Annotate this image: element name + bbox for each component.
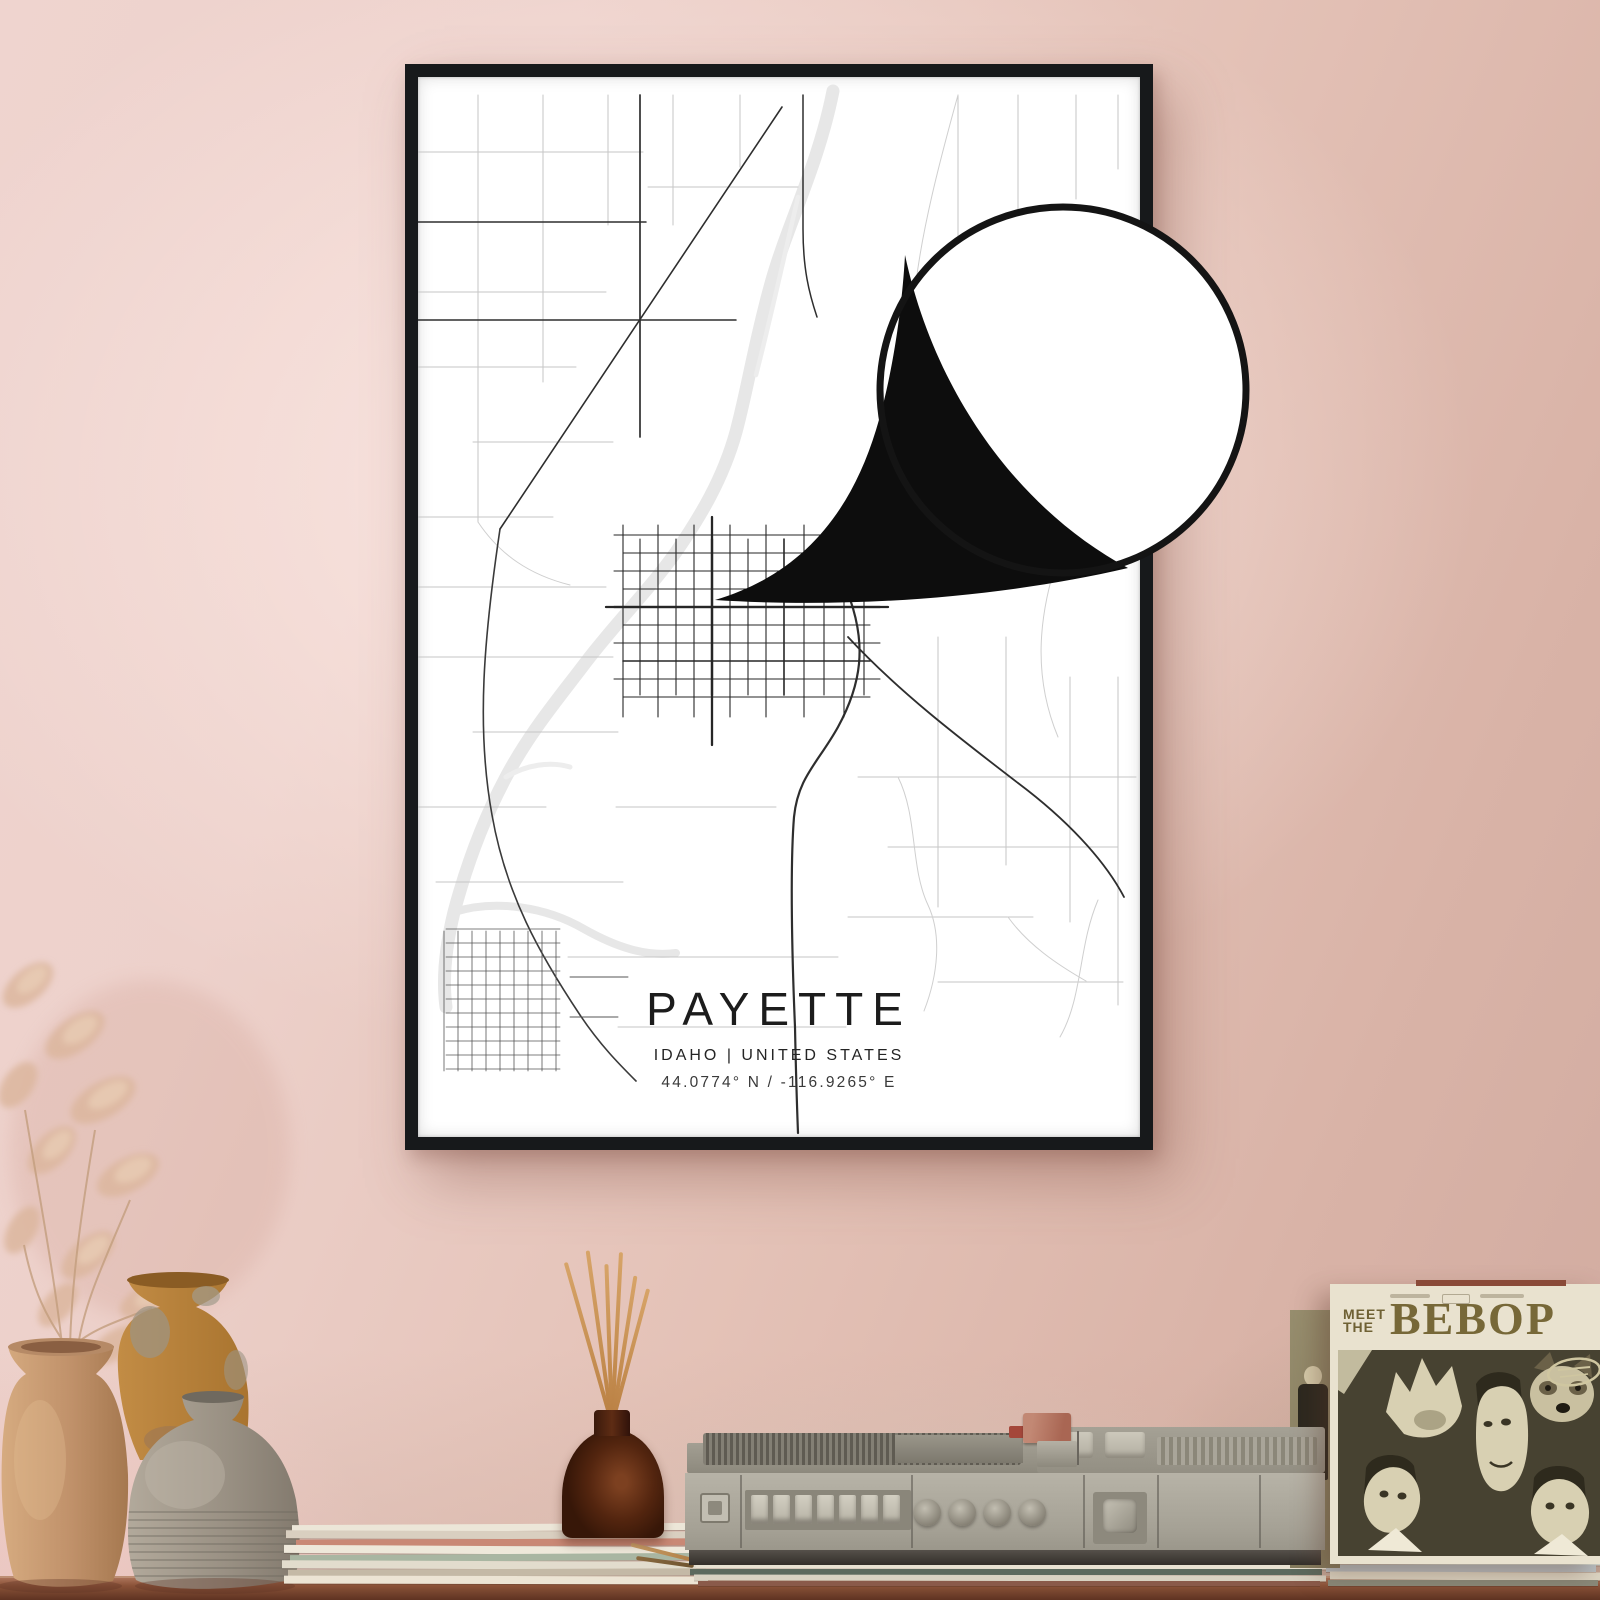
magazine-spine bbox=[1328, 1580, 1598, 1586]
preset-button bbox=[861, 1495, 878, 1524]
poster-title: PAYETTE bbox=[418, 982, 1140, 1036]
sleeve-title-band: BEBOP bbox=[1390, 1292, 1556, 1345]
diffuser-bottle bbox=[562, 1430, 664, 1538]
tonearm-base bbox=[1037, 1441, 1077, 1467]
bebop-record-sleeve: MEET THE BEBOP bbox=[1330, 1284, 1600, 1564]
light-wedge bbox=[1338, 1350, 1372, 1394]
preset-button bbox=[773, 1495, 790, 1524]
control-knob bbox=[984, 1499, 1011, 1526]
panel-seam bbox=[1259, 1475, 1261, 1548]
tuning-knob bbox=[1103, 1499, 1137, 1533]
control-knob bbox=[914, 1499, 941, 1526]
panel-seam bbox=[911, 1475, 913, 1548]
dog-nose bbox=[1556, 1403, 1570, 1413]
face-spike-shade bbox=[1414, 1410, 1446, 1430]
record-player bbox=[685, 1385, 1325, 1572]
map-zoom-callout bbox=[680, 170, 1280, 640]
magazine-spine bbox=[284, 1576, 708, 1585]
control-knob bbox=[1019, 1499, 1046, 1526]
preset-button bbox=[839, 1495, 856, 1524]
player-base bbox=[689, 1550, 1321, 1565]
left-decor bbox=[0, 900, 340, 1600]
poster-title-block: PAYETTE IDAHO | UNITED STATES 44.0774° N… bbox=[418, 982, 1140, 1092]
tan-vase bbox=[2, 1338, 129, 1587]
vase-shadow bbox=[135, 1578, 295, 1594]
face-faye-eye bbox=[1546, 1503, 1555, 1510]
panel-seam bbox=[740, 1475, 742, 1548]
poster-subtitle: IDAHO | UNITED STATES bbox=[418, 1047, 1140, 1065]
sleeve-title-meet-the: MEET THE bbox=[1343, 1308, 1386, 1334]
face-jet bbox=[1476, 1386, 1528, 1491]
preset-button bbox=[751, 1495, 768, 1524]
dog-eye bbox=[1545, 1385, 1551, 1391]
face-ed-eye bbox=[1398, 1493, 1407, 1500]
deck-button bbox=[1105, 1432, 1145, 1458]
poster-coordinates: 44.0774° N / -116.9265° E bbox=[418, 1074, 1140, 1092]
sleeve-top-edge bbox=[1416, 1280, 1566, 1286]
face-jet-eye bbox=[1484, 1421, 1493, 1427]
panel-seam bbox=[1083, 1475, 1085, 1548]
magazine-spine bbox=[698, 1581, 1320, 1586]
collar bbox=[1368, 1528, 1422, 1552]
reed-diffuser bbox=[552, 1262, 672, 1552]
face-ed-eye bbox=[1380, 1491, 1389, 1498]
control-knob bbox=[949, 1499, 976, 1526]
face-faye-eye bbox=[1566, 1503, 1575, 1510]
sleeve-word-the: THE bbox=[1343, 1321, 1386, 1334]
deck-vent-ribs bbox=[1157, 1437, 1317, 1465]
antenna bbox=[1077, 1431, 1079, 1465]
tonearm-cartridge bbox=[1023, 1413, 1071, 1443]
turntable-platter-edge bbox=[895, 1435, 1023, 1463]
figure-head bbox=[1304, 1366, 1322, 1386]
diffuser-neck bbox=[594, 1410, 630, 1436]
vase-shadow bbox=[0, 1579, 122, 1593]
cover-art-figures bbox=[1338, 1350, 1600, 1556]
preset-button bbox=[817, 1495, 834, 1524]
panel-seam bbox=[1157, 1475, 1159, 1548]
power-button-inset bbox=[708, 1501, 722, 1515]
preset-button bbox=[883, 1495, 900, 1524]
preset-button bbox=[795, 1495, 812, 1524]
sleeve-cover-art bbox=[1338, 1350, 1600, 1556]
face-jet-eye bbox=[1501, 1419, 1511, 1426]
